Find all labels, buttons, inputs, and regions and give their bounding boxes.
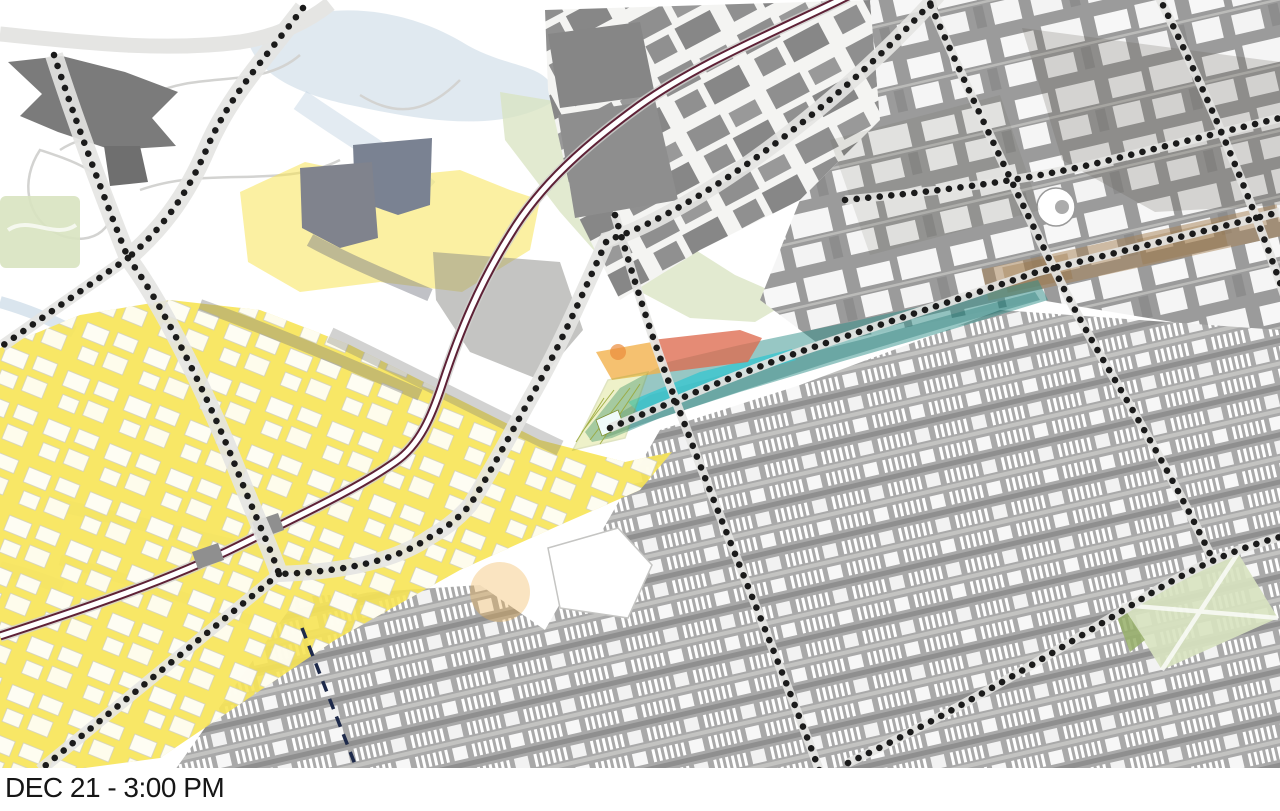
shadow-study-page: DEC 21 - 3:00 PM xyxy=(0,0,1280,811)
round-building-core xyxy=(1055,200,1069,214)
map-canvas xyxy=(0,0,1280,770)
park-west xyxy=(0,196,80,268)
impact-deep-spot xyxy=(610,344,626,360)
timestamp-caption: DEC 21 - 3:00 PM xyxy=(0,768,1280,811)
campus-building-1 xyxy=(548,22,655,108)
map-svg xyxy=(0,0,1280,770)
sun-glow-spot xyxy=(470,562,530,622)
